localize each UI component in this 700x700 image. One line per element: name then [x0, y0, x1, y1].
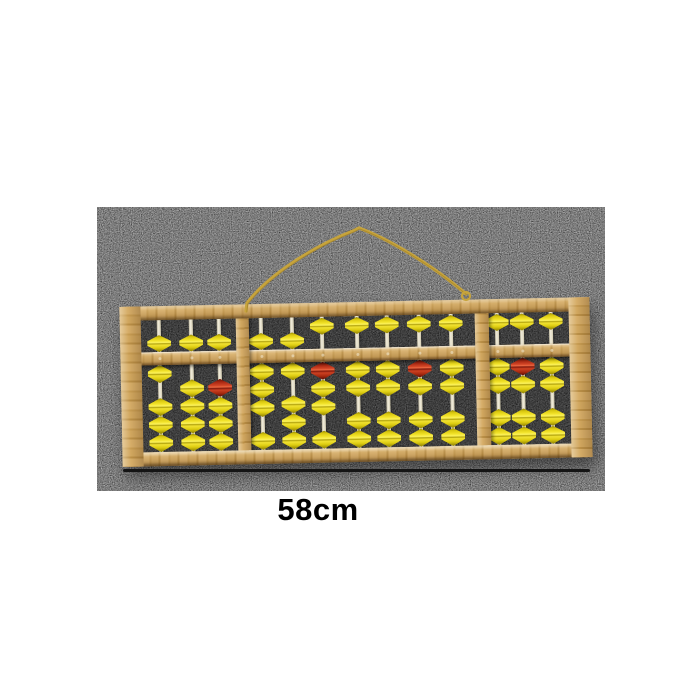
- beam-dot: [291, 354, 294, 357]
- beam-dot: [158, 357, 161, 360]
- beam-dot: [190, 356, 193, 359]
- beam-dot: [386, 352, 389, 355]
- size-caption: 58cm: [97, 492, 539, 528]
- abacus-frame-right-rail: [568, 297, 592, 457]
- beam-dot: [356, 353, 359, 356]
- abacus: [119, 297, 592, 467]
- product-photo: [97, 207, 605, 491]
- beam-dot: [496, 350, 499, 353]
- beam-dot: [260, 355, 263, 358]
- beam-dot: [418, 352, 421, 355]
- beam-dot: [450, 351, 453, 354]
- beam-dot: [218, 356, 221, 359]
- beam-dot: [321, 354, 324, 357]
- abacus-frame-left-rail: [119, 306, 143, 466]
- beam-dot: [521, 349, 524, 352]
- dimension-line: [123, 469, 590, 472]
- abacus-beam-dots-layer: [119, 297, 592, 467]
- beam-dot: [550, 349, 553, 352]
